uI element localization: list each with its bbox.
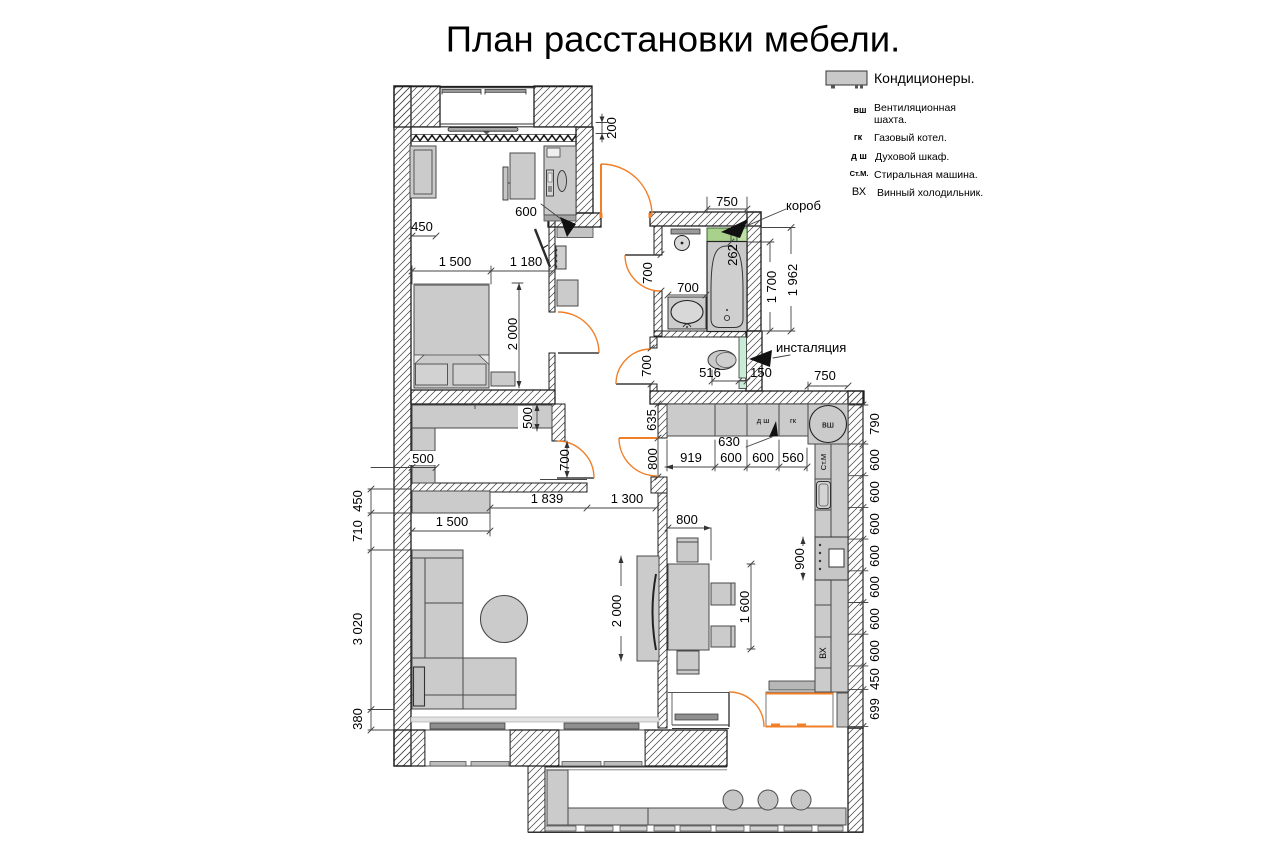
svg-text:Газовый котел.: Газовый котел. <box>874 132 947 144</box>
svg-text:600: 600 <box>867 481 882 503</box>
svg-text:1 180: 1 180 <box>510 254 543 269</box>
svg-text:600: 600 <box>867 576 882 598</box>
svg-text:1 962: 1 962 <box>785 264 800 297</box>
svg-text:2 000: 2 000 <box>505 318 520 351</box>
svg-text:2 000: 2 000 <box>609 595 624 628</box>
svg-text:1 600: 1 600 <box>737 591 752 624</box>
svg-text:Вентиляционная: Вентиляционная <box>874 102 956 114</box>
svg-text:710: 710 <box>350 520 365 542</box>
svg-text:600: 600 <box>515 204 537 219</box>
svg-text:вш: вш <box>853 105 866 115</box>
svg-text:500: 500 <box>412 451 434 466</box>
svg-text:Ст.М.: Ст.М. <box>850 169 869 178</box>
svg-text:630: 630 <box>718 434 740 449</box>
svg-text:699: 699 <box>867 698 882 720</box>
svg-text:600: 600 <box>720 450 742 465</box>
svg-text:750: 750 <box>716 194 738 209</box>
svg-text:600: 600 <box>867 608 882 630</box>
svg-text:800: 800 <box>676 512 698 527</box>
svg-text:790: 790 <box>867 413 882 435</box>
svg-text:ВХ: ВХ <box>852 186 867 198</box>
svg-text:200: 200 <box>604 117 619 139</box>
svg-text:700: 700 <box>557 449 572 471</box>
svg-text:гк: гк <box>790 416 797 425</box>
svg-text:Стиральная машина.: Стиральная машина. <box>874 169 978 181</box>
svg-text:380: 380 <box>350 708 365 730</box>
svg-text:3 020: 3 020 <box>350 613 365 646</box>
svg-text:Винный холодильник.: Винный холодильник. <box>877 187 983 199</box>
svg-text:Кондиционеры.: Кондиционеры. <box>874 70 975 86</box>
svg-text:1 300: 1 300 <box>611 491 644 506</box>
svg-text:инсталяция: инсталяция <box>776 340 846 355</box>
svg-text:600: 600 <box>867 545 882 567</box>
svg-text:д ш: д ш <box>757 416 769 425</box>
svg-text:шахта.: шахта. <box>874 114 907 126</box>
svg-text:ВХ: ВХ <box>818 647 828 659</box>
svg-text:700: 700 <box>640 262 655 284</box>
svg-text:750: 750 <box>814 368 836 383</box>
svg-text:Духовой шкаф.: Духовой шкаф. <box>875 151 949 163</box>
svg-text:800: 800 <box>645 448 660 470</box>
svg-text:1 500: 1 500 <box>439 254 472 269</box>
svg-text:600: 600 <box>867 640 882 662</box>
svg-text:гк: гк <box>854 132 863 142</box>
svg-text:450: 450 <box>411 219 433 234</box>
svg-text:700: 700 <box>639 355 654 377</box>
svg-text:560: 560 <box>782 450 804 465</box>
svg-text:919: 919 <box>680 450 702 465</box>
svg-text:План расстановки мебели.: План расстановки мебели. <box>446 19 901 60</box>
svg-text:1 500: 1 500 <box>436 514 469 529</box>
svg-text:150: 150 <box>750 365 772 380</box>
svg-text:450: 450 <box>867 668 882 690</box>
svg-text:короб: короб <box>786 198 821 213</box>
svg-text:1 839: 1 839 <box>531 491 564 506</box>
svg-text:600: 600 <box>867 449 882 471</box>
svg-text:600: 600 <box>752 450 774 465</box>
svg-text:516: 516 <box>699 365 721 380</box>
svg-text:500: 500 <box>520 407 535 429</box>
svg-text:450: 450 <box>350 490 365 512</box>
svg-text:1 700: 1 700 <box>764 271 779 304</box>
svg-text:635: 635 <box>644 409 659 431</box>
svg-text:600: 600 <box>867 513 882 535</box>
svg-text:д ш: д ш <box>851 151 867 161</box>
svg-text:700: 700 <box>677 280 699 295</box>
svg-text:Ст.М: Ст.М <box>819 454 828 470</box>
svg-text:262: 262 <box>725 244 740 266</box>
svg-text:900: 900 <box>792 548 807 570</box>
svg-text:вш: вш <box>822 420 834 430</box>
